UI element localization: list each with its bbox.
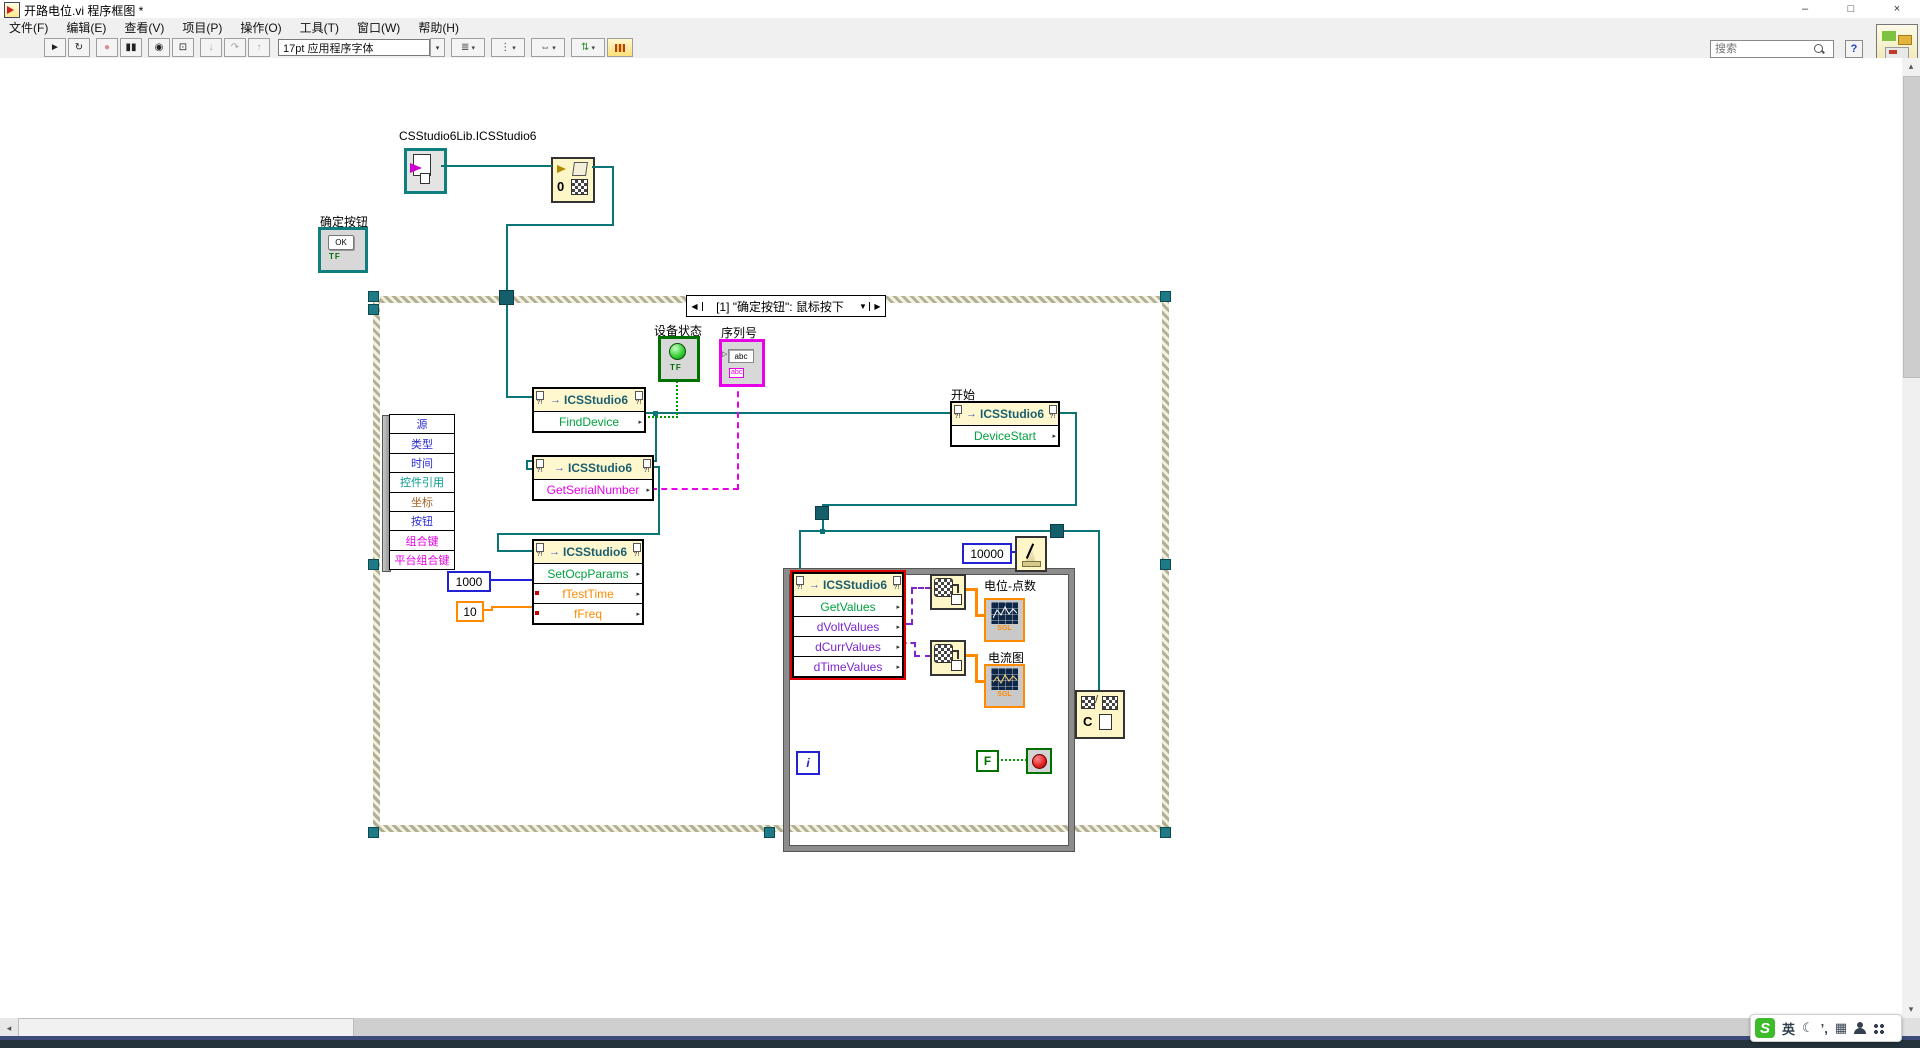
- class-name: ICSStudio6: [823, 578, 887, 592]
- wire-class-ref[interactable]: [655, 412, 657, 462]
- menu-file[interactable]: 文件(F): [0, 18, 57, 37]
- class-name: ICSStudio6: [564, 393, 628, 407]
- wire-boolean[interactable]: [643, 416, 678, 418]
- highlight-execution-button[interactable]: ◉: [148, 38, 170, 57]
- invoke-node-header: ?! → ICSStudio6 ?!: [534, 541, 642, 564]
- chart-datatype: SGL: [997, 691, 1011, 698]
- dropdown-arrow-icon: ▾: [512, 44, 516, 52]
- font-selector-dropdown[interactable]: ▾: [430, 38, 445, 57]
- node-corner-icon: ?!: [535, 459, 544, 474]
- distribute-icon: ⋮: [500, 42, 510, 53]
- class-small-page-icon: [420, 173, 430, 184]
- ok-button-glyph: OK: [328, 235, 354, 250]
- event-case-selector: ◀ [1] "确定按钮": 鼠标按下 ▼ ▶: [686, 295, 886, 317]
- class-constant-label: CSStudio6Lib.ICSStudio6: [399, 129, 536, 143]
- invoke-node-header: ?! → ICSStudio6 ?!: [534, 457, 652, 480]
- align-objects-button[interactable]: ≣▾: [451, 38, 485, 57]
- scroll-up-button[interactable]: ▴: [1902, 58, 1920, 75]
- event-data-item[interactable]: 时间: [389, 453, 455, 473]
- chart-plot-icon: [991, 668, 1018, 690]
- device-status-indicator[interactable]: TF: [658, 336, 700, 382]
- wire-string[interactable]: [651, 488, 739, 490]
- wire-class-ref[interactable]: [1062, 530, 1100, 532]
- input-dot: [535, 611, 539, 615]
- ok-button-tf: TF: [329, 252, 341, 261]
- output-arrow-icon: ▸: [896, 623, 900, 631]
- param-row[interactable]: fTestTime ▸: [534, 584, 642, 604]
- wire-float[interactable]: [491, 606, 533, 608]
- serial-abc-tag: abc: [729, 368, 744, 378]
- close-ref-checker-icon: [1081, 696, 1095, 709]
- reorder-button[interactable]: ⇅▾: [571, 38, 605, 57]
- event-tunnel[interactable]: [499, 290, 514, 305]
- distribute-objects-button[interactable]: ⋮▾: [491, 38, 525, 57]
- run-button[interactable]: ►: [44, 38, 66, 57]
- loop-condition-terminal[interactable]: [1026, 748, 1052, 774]
- curr-chart-terminal[interactable]: SGL: [984, 664, 1025, 708]
- menu-operate[interactable]: 操作(O): [231, 18, 290, 37]
- scroll-down-button[interactable]: ▾: [1902, 1001, 1920, 1018]
- sogou-logo[interactable]: S: [1755, 1018, 1775, 1038]
- invoke-arrow-icon: →: [549, 546, 560, 558]
- constructor-cube-icon: [572, 162, 588, 176]
- search-box: [1710, 40, 1834, 58]
- class-name: ICSStudio6: [980, 407, 1044, 421]
- sogou-input-bar: S 英 ☾ ’, ▦: [1750, 1014, 1902, 1042]
- method-row[interactable]: SetOcpParams ▸: [534, 564, 642, 584]
- event-data-item[interactable]: 类型: [389, 433, 455, 453]
- ok-button-terminal[interactable]: OK TF: [318, 227, 368, 273]
- run-continuous-button[interactable]: ↻: [68, 38, 90, 57]
- font-selector[interactable]: 17pt 应用程序字体: [278, 39, 430, 56]
- wire-class-ref[interactable]: [506, 224, 508, 398]
- loop-tunnel[interactable]: [1050, 524, 1064, 538]
- selection-handle[interactable]: [1160, 827, 1171, 838]
- event-data-item[interactable]: 按钮: [389, 511, 455, 531]
- node-corner-icon: ?!: [642, 459, 651, 474]
- data-box-icon: [951, 660, 962, 671]
- event-data-item[interactable]: 坐标: [389, 492, 455, 512]
- method-row[interactable]: DeviceStart ▸: [952, 426, 1058, 445]
- device-status-tf: TF: [670, 363, 682, 372]
- node-corner-icon: ?!: [535, 543, 544, 558]
- window-title: 开路电位.vi 程序框图 *: [24, 2, 143, 19]
- step-over-button[interactable]: ↷: [224, 38, 246, 57]
- menu-project[interactable]: 项目(P): [173, 18, 231, 37]
- wire-class-ref[interactable]: [658, 466, 660, 535]
- event-data-item[interactable]: 源: [389, 414, 455, 434]
- method-name: GetSerialNumber: [547, 483, 640, 497]
- event-data-item[interactable]: 控件引用: [389, 472, 455, 492]
- wire-string[interactable]: [737, 381, 739, 490]
- input-mode-toggle[interactable]: 英: [1782, 1019, 1795, 1038]
- loop-tunnel[interactable]: [815, 506, 829, 520]
- wire-class-ref[interactable]: [497, 550, 535, 552]
- wire-class-ref[interactable]: [592, 166, 614, 168]
- vi-icon-block-green: [1882, 31, 1896, 41]
- output-arrow-icon: ▸: [636, 610, 640, 618]
- prev-case-button[interactable]: ◀: [687, 302, 703, 311]
- iteration-terminal[interactable]: i: [796, 751, 820, 775]
- selection-handle[interactable]: [368, 304, 379, 315]
- class-name: ICSStudio6: [568, 461, 632, 475]
- reorder-icon: ⇅: [581, 42, 589, 53]
- output-row[interactable]: dCurrValues ▸: [794, 637, 902, 657]
- cleanup-diagram-button[interactable]: [607, 38, 633, 57]
- wire-class-ref[interactable]: [497, 533, 660, 535]
- pause-button[interactable]: ▮▮: [120, 38, 142, 57]
- constructor-node[interactable]: 0: [552, 158, 594, 202]
- node-corner-icon: ?!: [535, 391, 544, 406]
- retain-wire-values-button[interactable]: ⊡: [172, 38, 194, 57]
- param-name: fFreq: [574, 607, 602, 621]
- invoke-arrow-icon: →: [554, 462, 565, 474]
- wire-class-ref[interactable]: [506, 396, 535, 398]
- volt-chart-label: 电位-点数: [984, 577, 1036, 594]
- close-ref-checker-icon: [1102, 696, 1118, 710]
- event-data-node: 源 类型 时间 控件引用 坐标 按钮 组合键 平台组合键: [389, 415, 455, 570]
- horizontal-scroll-thumb[interactable]: [18, 1018, 354, 1038]
- convert-arrow-icon: [957, 650, 959, 659]
- node-corner-icon: ?!: [1048, 405, 1057, 420]
- invoke-node-header: ?! → ICSStudio6 ?!: [794, 574, 902, 597]
- invoke-node-header: ?! → ICSStudio6 ?!: [534, 389, 644, 412]
- param-row[interactable]: fFreq ▸: [534, 604, 642, 623]
- wire-class-ref[interactable]: [643, 412, 953, 414]
- output-arrow-icon: ▸: [896, 643, 900, 651]
- step-into-button[interactable]: ↓: [200, 38, 222, 57]
- output-name: dVoltValues: [817, 620, 880, 634]
- selection-handle[interactable]: [1160, 291, 1171, 302]
- account-icon[interactable]: [1854, 1022, 1866, 1034]
- close-ref-letter: C: [1083, 714, 1092, 729]
- output-row[interactable]: dTimeValues ▸: [794, 657, 902, 676]
- close-button[interactable]: ×: [1874, 0, 1920, 18]
- search-input[interactable]: [1711, 42, 1813, 56]
- wire-class-ref[interactable]: [799, 530, 1058, 532]
- input-arrow-icon: ▷: [722, 350, 727, 358]
- led-icon: [669, 343, 686, 360]
- input-dot: [535, 591, 539, 595]
- close-reference-node[interactable]: / C: [1076, 691, 1124, 738]
- node-corner-icon: ?!: [892, 576, 901, 591]
- keyboard-icon[interactable]: ▦: [1835, 1020, 1847, 1036]
- menu-edit[interactable]: 编辑(E): [57, 18, 115, 37]
- selection-handle[interactable]: [764, 827, 775, 838]
- output-arrow-icon: ▸: [638, 418, 642, 426]
- class-name: ICSStudio6: [563, 545, 627, 559]
- output-name: dCurrValues: [815, 640, 881, 654]
- search-icon: [1813, 43, 1825, 55]
- labview-window: 开路电位.vi 程序框图 * – □ × 文件(F) 编辑(E) 查看(V) 项…: [0, 0, 1920, 1048]
- next-case-button[interactable]: ▶: [869, 302, 885, 311]
- node-corner-icon: ?!: [953, 405, 962, 420]
- method-name: SetOcpParams: [547, 567, 628, 581]
- false-constant[interactable]: F: [976, 750, 999, 772]
- device-start-label: 开始: [951, 386, 975, 403]
- minimize-button[interactable]: –: [1782, 0, 1828, 18]
- toolbox-icon[interactable]: [1873, 1023, 1884, 1034]
- selection-handle[interactable]: [368, 291, 379, 302]
- dropdown-arrow-icon: ▾: [552, 44, 556, 52]
- serial-number-indicator[interactable]: ▷ abc abc: [719, 339, 765, 387]
- wire-junction: [820, 529, 825, 534]
- output-row[interactable]: dVoltValues ▸: [794, 617, 902, 637]
- wire-int[interactable]: [487, 579, 533, 581]
- node-corner-icon: ?!: [632, 543, 641, 558]
- vertical-scroll-thumb[interactable]: [1903, 76, 1920, 378]
- wait-ms-node[interactable]: [1016, 537, 1046, 571]
- param-name: fTestTime: [562, 587, 614, 601]
- selection-handle[interactable]: [1160, 559, 1171, 570]
- data-box-icon: [951, 594, 962, 605]
- dropdown-arrow-icon: ▾: [591, 44, 595, 52]
- invoke-node-device-start[interactable]: ?! → ICSStudio6 ?! DeviceStart ▸: [951, 402, 1059, 446]
- wire-class-ref[interactable]: [822, 504, 1077, 506]
- invoke-arrow-icon: →: [809, 579, 820, 591]
- menu-bar: 文件(F) 编辑(E) 查看(V) 项目(P) 操作(O) 工具(T) 窗口(W…: [0, 18, 1920, 37]
- scrollbar-corner: [1902, 1018, 1920, 1038]
- menu-window[interactable]: 窗口(W): [348, 18, 409, 37]
- constant-1000[interactable]: 1000: [447, 571, 491, 592]
- convert-arrow-icon: [957, 584, 959, 593]
- event-case-title[interactable]: [1] "确定按钮": 鼠标按下: [703, 298, 857, 315]
- selection-handle[interactable]: [368, 559, 379, 570]
- invoke-node-find-device[interactable]: ?! → ICSStudio6 ?! FindDevice ▸: [533, 388, 645, 432]
- output-arrow-icon: ▸: [646, 486, 650, 494]
- wire-class-ref[interactable]: [1075, 412, 1077, 506]
- align-icon: ≣: [461, 42, 469, 53]
- class-constant[interactable]: [404, 148, 447, 194]
- method-name: FindDevice: [559, 415, 619, 429]
- close-ref-page-icon: [1099, 714, 1112, 730]
- vi-icon-block-yellow: [1898, 35, 1912, 45]
- abort-button[interactable]: ●: [96, 38, 118, 57]
- wire-class-ref[interactable]: [506, 224, 614, 226]
- stop-sign-icon: [1032, 754, 1047, 769]
- metronome-base: [1022, 561, 1041, 567]
- dropdown-arrow-icon: ▾: [471, 44, 475, 52]
- output-name: dTimeValues: [814, 660, 883, 674]
- wire-class-ref[interactable]: [612, 166, 614, 226]
- invoke-node-header: ?! → ICSStudio6 ?!: [952, 403, 1058, 426]
- node-corner-icon: ?!: [634, 391, 643, 406]
- output-arrow-icon: ▸: [896, 663, 900, 671]
- method-row[interactable]: GetValues ▸: [794, 597, 902, 617]
- wire-class-ref[interactable]: [1098, 530, 1100, 692]
- help-button[interactable]: ?: [1845, 40, 1863, 58]
- moon-icon[interactable]: ☾: [1802, 1020, 1814, 1036]
- method-row[interactable]: FindDevice ▸: [534, 412, 644, 431]
- toolbar: ► ↻ ● ▮▮ ◉ ⊡ ↓ ↷ ↑ 17pt 应用程序字体 ▾ ≣▾ ⋮▾ ⇔…: [0, 37, 1920, 59]
- output-arrow-icon: ▸: [636, 570, 640, 578]
- punctuation-toggle[interactable]: ’,: [1821, 1021, 1828, 1036]
- selection-handle[interactable]: [368, 827, 379, 838]
- node-corner-icon: ?!: [795, 576, 804, 591]
- maximize-button[interactable]: □: [1828, 0, 1874, 18]
- variant-to-data-node[interactable]: [931, 641, 965, 675]
- vi-icon-block-red: [1889, 50, 1897, 54]
- variant-to-data-node[interactable]: [931, 575, 965, 609]
- chart-datatype: SGL: [997, 625, 1011, 632]
- step-out-button[interactable]: ↑: [248, 38, 270, 57]
- case-dropdown-icon[interactable]: ▼: [857, 302, 869, 311]
- scroll-left-button[interactable]: ◂: [0, 1018, 18, 1038]
- output-arrow-icon: ▸: [896, 603, 900, 611]
- wire-class-ref[interactable]: [1057, 412, 1077, 414]
- constant-10[interactable]: 10: [456, 601, 484, 622]
- title-bar: 开路电位.vi 程序框图 * – □ ×: [0, 0, 1920, 19]
- wire-class-ref[interactable]: [441, 165, 552, 167]
- broom-icon: [615, 44, 625, 52]
- serial-value: abc: [728, 349, 754, 363]
- menu-view[interactable]: 查看(V): [115, 18, 173, 37]
- volt-chart-terminal[interactable]: SGL: [984, 598, 1025, 642]
- output-arrow-icon: ▸: [636, 590, 640, 598]
- class-arrow-icon: [410, 163, 427, 173]
- block-diagram: CSStudio6Lib.ICSStudio6 0 确定按钮 OK TF: [0, 58, 1902, 1018]
- menu-tools[interactable]: 工具(T): [291, 18, 348, 37]
- wire-boolean[interactable]: [676, 378, 678, 418]
- chart-plot-icon: [991, 602, 1018, 624]
- event-data-item[interactable]: 组合键: [389, 530, 455, 550]
- invoke-arrow-icon: →: [550, 394, 561, 406]
- constant-10000[interactable]: 10000: [962, 543, 1012, 564]
- constructor-arrow-icon: [557, 165, 570, 173]
- output-arrow-icon: ▸: [1052, 432, 1056, 440]
- slash-icon: /: [1095, 694, 1098, 706]
- method-row[interactable]: GetSerialNumber ▸: [534, 480, 652, 499]
- method-name: DeviceStart: [974, 429, 1036, 443]
- resize-icon: ⇔: [540, 42, 550, 53]
- app-icon[interactable]: [4, 2, 20, 18]
- invoke-node-get-serial[interactable]: ?! → ICSStudio6 ?! GetSerialNumber ▸: [533, 456, 653, 500]
- constructor-checker-icon: [571, 179, 588, 195]
- invoke-arrow-icon: →: [966, 408, 977, 420]
- app-icon-arrow: [7, 6, 18, 14]
- method-name: GetValues: [820, 600, 875, 614]
- taskbar: [0, 1040, 1920, 1048]
- constructor-zero: 0: [557, 179, 564, 194]
- invoke-node-set-ocp[interactable]: ?! → ICSStudio6 ?! SetOcpParams ▸ fTestT…: [533, 540, 643, 624]
- event-data-item[interactable]: 平台组合键: [389, 550, 455, 570]
- menu-help[interactable]: 帮助(H): [409, 18, 468, 37]
- resize-objects-button[interactable]: ⇔▾: [531, 38, 565, 57]
- invoke-node-get-values[interactable]: ?! → ICSStudio6 ?! GetValues ▸ dVoltValu…: [793, 573, 903, 677]
